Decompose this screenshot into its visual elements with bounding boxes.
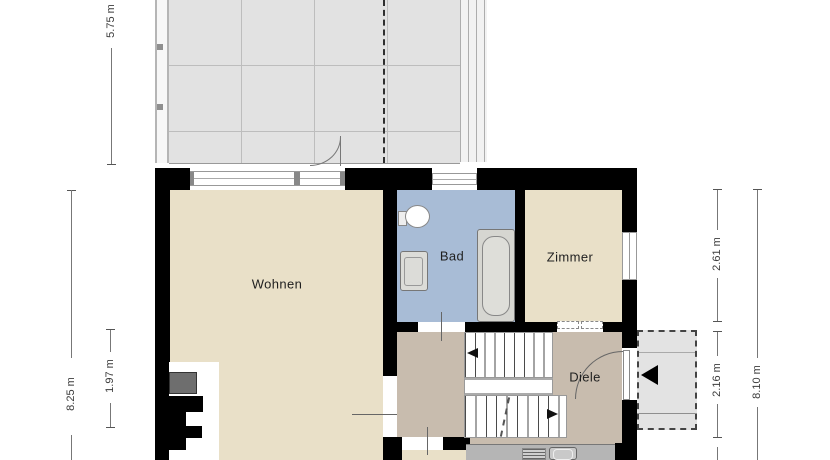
wall-top-right — [477, 168, 637, 190]
fireplace — [169, 372, 197, 394]
terrace-railing-right — [460, 0, 487, 162]
wall-wohnen-hall-lower — [383, 437, 402, 460]
dimension-line-5-75 — [111, 48, 112, 165]
wall-top-middle — [345, 168, 432, 190]
dimension-line-2-16 — [717, 332, 718, 356]
window-bad — [432, 173, 477, 185]
dimension-tick — [713, 437, 722, 438]
dimension-label-2-61: 2.61 m — [710, 231, 724, 277]
door-opening-wohnen — [383, 376, 397, 437]
wall-left — [155, 168, 170, 460]
dimension-line-8-25 — [71, 190, 72, 358]
stairs-landing — [464, 378, 553, 395]
dimension-label-1-97: 1.97 m — [103, 353, 117, 399]
kitchen-sink-basin — [553, 449, 573, 460]
dimension-label-8-25: 8.25 m — [64, 371, 78, 417]
sliding-door-leaf-zimmer — [581, 321, 603, 329]
dimension-tick — [106, 427, 115, 428]
entrance-door-panel — [623, 350, 630, 400]
door-leaf-wohnen — [352, 414, 397, 415]
room-label-bad: Bad — [440, 249, 464, 264]
dimension-label-2-16: 2.16 m — [710, 357, 724, 403]
railing-post — [157, 104, 163, 110]
wall-bottom-right-corner — [615, 443, 637, 460]
wall-wohnen-bad-divider — [383, 190, 397, 376]
bathroom-sink-basin — [404, 257, 423, 286]
wall-right-upper — [622, 190, 637, 232]
wall-hall-top-2 — [465, 322, 557, 332]
wall-top-left — [155, 168, 190, 190]
window-mullion — [294, 172, 300, 185]
chimney — [169, 396, 203, 412]
window-frame-post — [190, 172, 194, 185]
door-leaf-bad — [441, 312, 442, 341]
railing-post — [157, 44, 163, 50]
dimension-line-2-16 — [717, 404, 718, 437]
door-opening-kitchen — [402, 437, 443, 450]
room-label-zimmer: Zimmer — [547, 250, 593, 265]
stove-icon — [522, 448, 546, 460]
bathtub-basin — [482, 236, 510, 316]
dimension-label-8-10: 8.10 m — [750, 359, 764, 405]
wall-bad-zimmer-divider — [515, 190, 525, 322]
terrace-roof-edge-dashed-line — [383, 0, 385, 163]
porch-step-line — [639, 413, 695, 414]
dimension-line-8-25 — [71, 435, 72, 460]
entrance-arrow-icon — [641, 365, 658, 385]
stairs-up-arrow-icon — [467, 348, 478, 358]
terrace-door-leaf — [340, 136, 341, 166]
floorplan-canvas: Wohnen Bad Zimmer Diele 5.75 m 8.25 m 1.… — [0, 0, 830, 460]
dimension-line-2-61 — [717, 190, 718, 230]
dimension-line-8-10 — [757, 407, 758, 460]
room-label-diele: Diele — [569, 370, 601, 385]
sliding-door-leaf-zimmer — [557, 321, 579, 329]
window-zimmer — [622, 232, 637, 280]
porch-step-line — [639, 352, 695, 353]
dimension-tick — [713, 321, 722, 322]
wall-right-middle — [622, 280, 637, 348]
stairs-down-arrow-icon — [547, 409, 558, 419]
toilet — [405, 205, 430, 228]
window-wohnen-sliding — [190, 171, 345, 186]
wall-hall-top-1 — [397, 322, 418, 332]
chimney — [169, 412, 186, 450]
window-frame-post — [340, 172, 345, 185]
dimension-label-5-75: 5.75 m — [104, 0, 118, 44]
dimension-tick — [107, 164, 116, 165]
room-label-wohnen: Wohnen — [252, 277, 303, 292]
door-leaf-kitchen — [427, 427, 428, 455]
dimension-line-next — [717, 447, 718, 460]
dimension-line-2-61 — [717, 278, 718, 322]
dimension-line-1-97 — [110, 330, 111, 352]
dimension-line-8-10 — [757, 190, 758, 358]
wall-hall-top-3 — [603, 322, 622, 332]
chimney — [186, 426, 202, 438]
dimension-line-1-97 — [110, 403, 111, 427]
terrace-railing-left — [155, 0, 169, 163]
